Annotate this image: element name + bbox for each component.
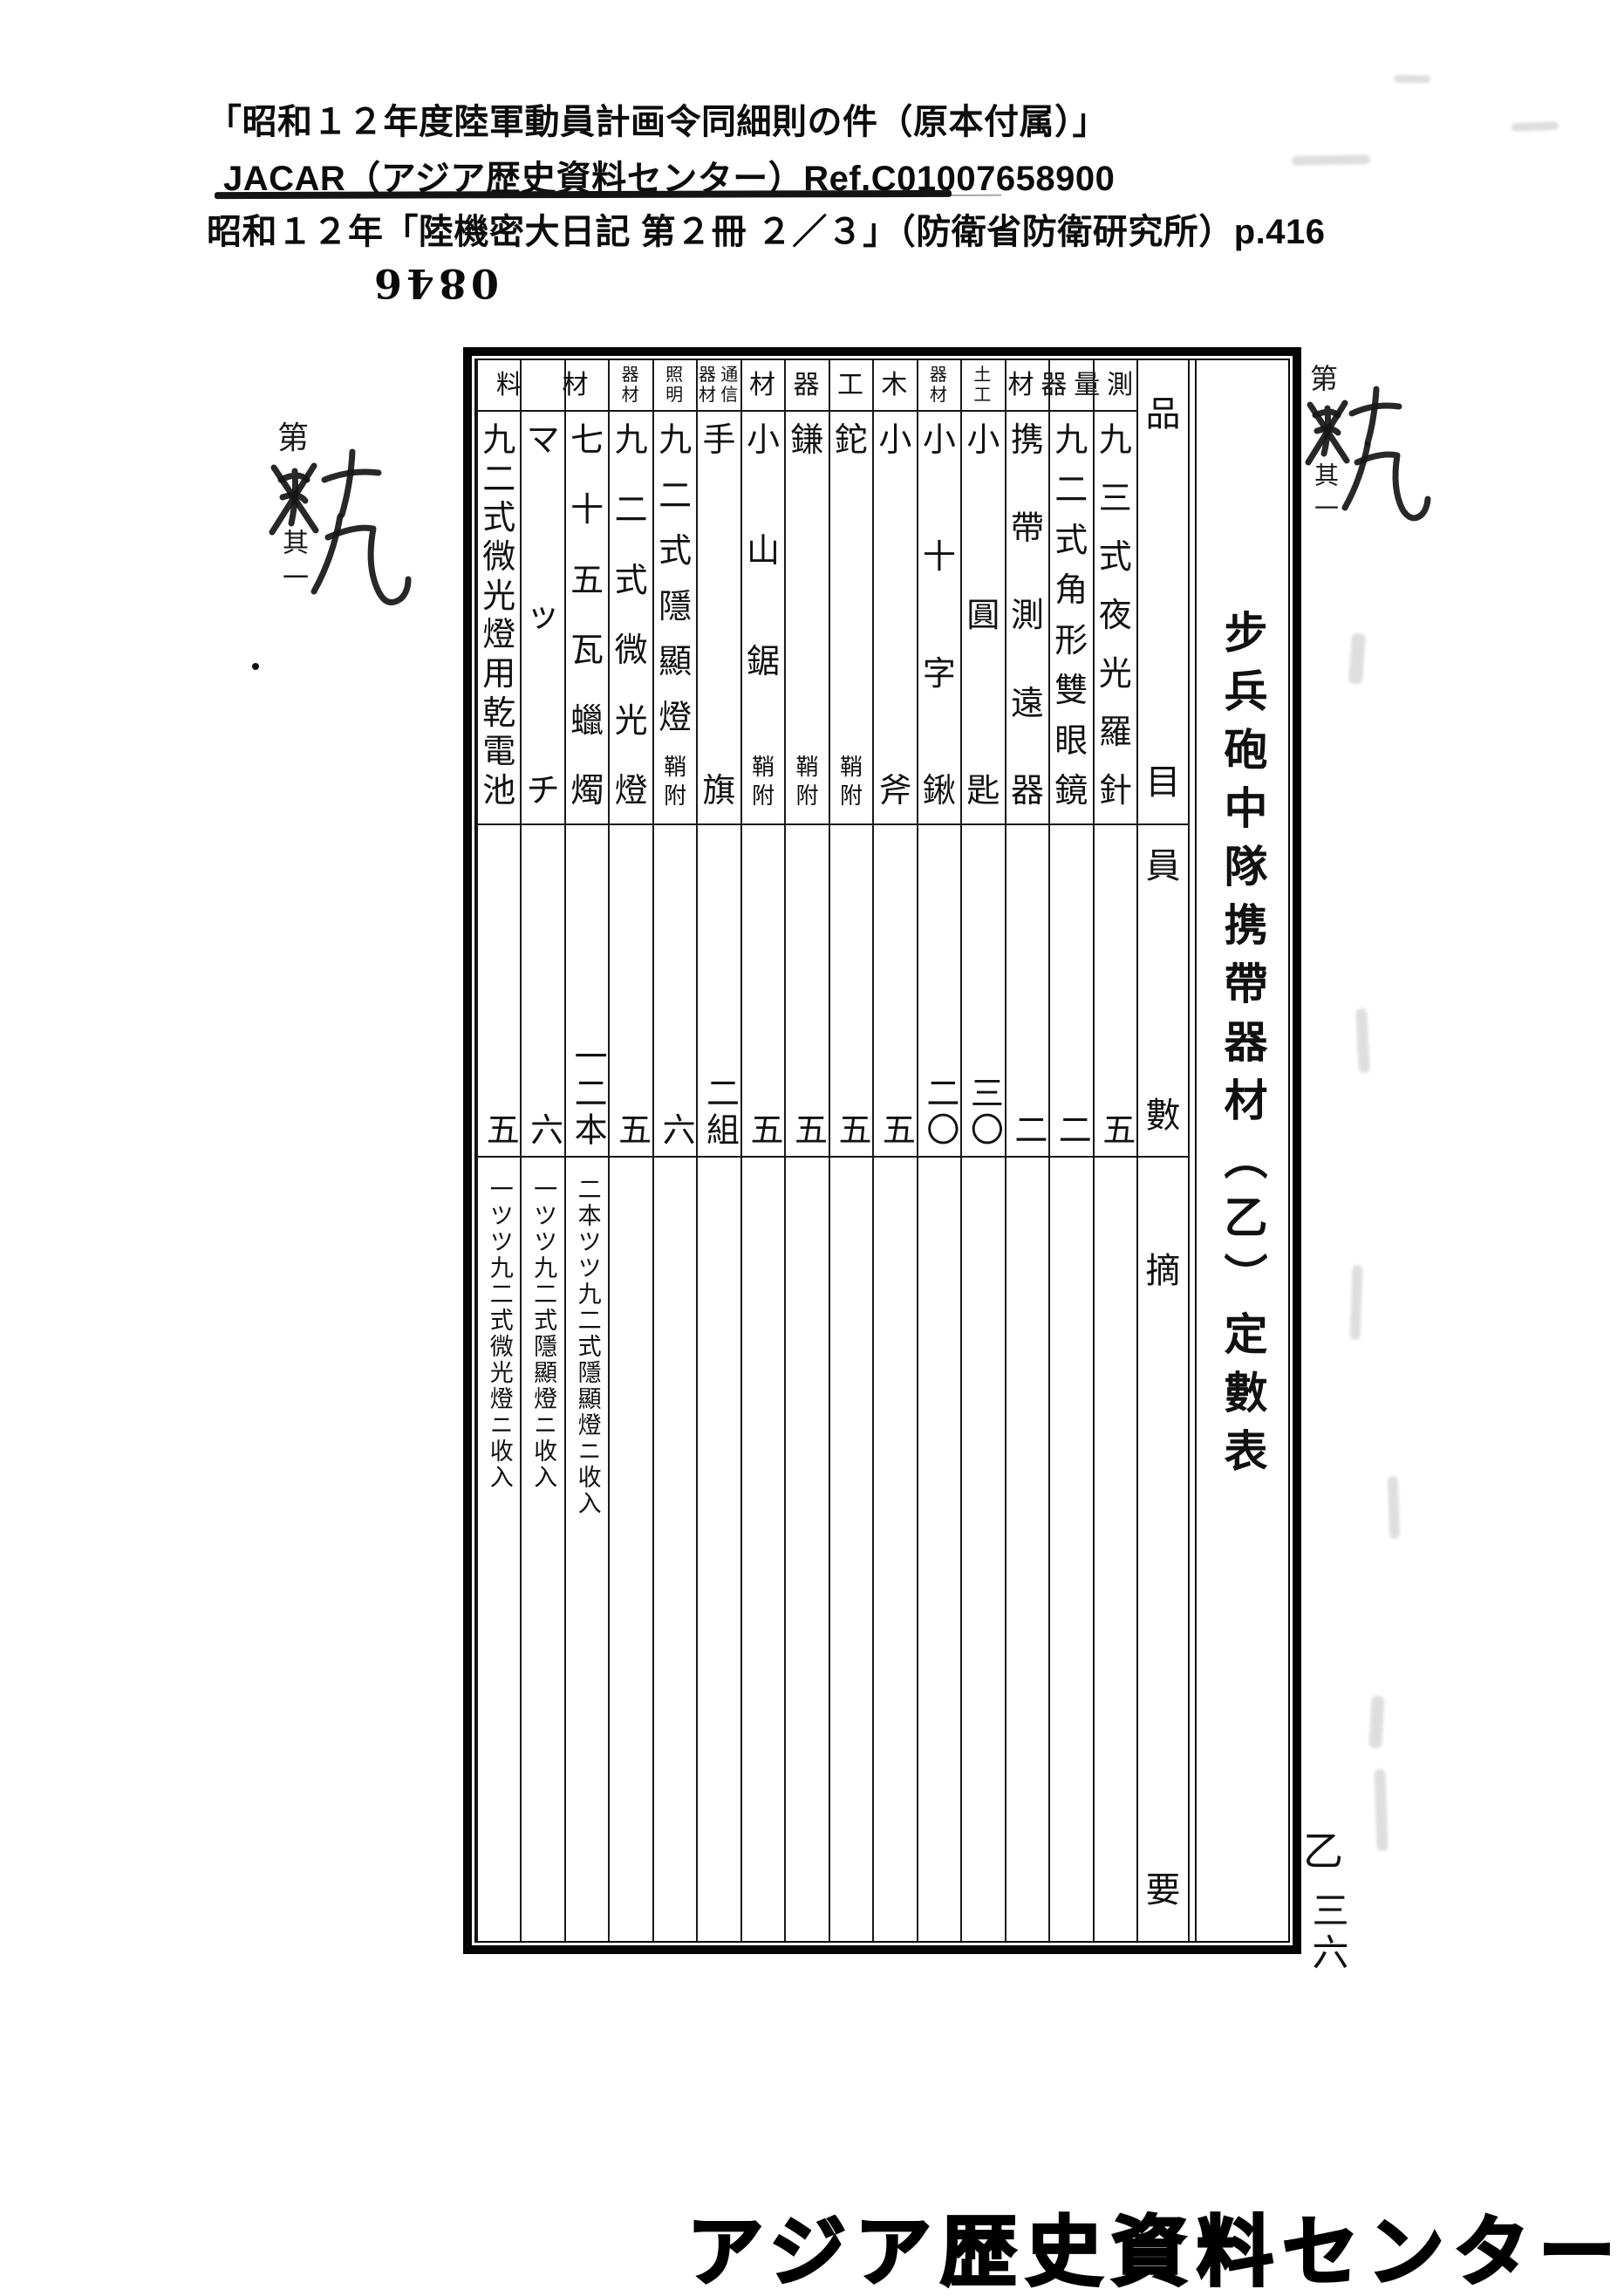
item-quantity: 五 — [1095, 823, 1136, 1156]
item-name: 九二式隱顯燈鞘附 — [654, 360, 696, 823]
item-remark — [830, 1156, 872, 1941]
bleed-mark — [1292, 154, 1370, 166]
item-quantity: 二〇 — [918, 823, 960, 1156]
bleed-mark — [1374, 1769, 1388, 1851]
citation-title: 「昭和１２年度陸軍動員計画令同細則の件（原本付属）」 — [207, 93, 1108, 144]
item-name: 小斧 — [874, 360, 916, 823]
bleed-mark — [1348, 633, 1366, 685]
item-name-suffix: 鞘附 — [840, 756, 863, 808]
item-name: 九二式角形雙眼鏡 — [1050, 360, 1092, 823]
table-inner-border: 測量器材土工器材木工器材通信器材照明器材材料 九三式夜光羅針五九二式角形雙眼鏡二… — [474, 359, 1290, 1943]
item-column: 七十五瓦蠟燭一二本二本ツツ九二式隱顯燈ニ收入 — [564, 360, 608, 1941]
item-quantity: 五 — [478, 823, 520, 1156]
item-name: 小十字鍬 — [918, 360, 960, 823]
item-column: 小山鋸鞘附五 — [740, 360, 784, 1941]
item-quantity: 二 — [1050, 823, 1092, 1156]
item-remark — [1050, 1156, 1092, 1941]
bleed-mark — [1388, 1476, 1401, 1539]
table-title: 步兵砲中隊携帶器材（乙）定數表 — [1221, 610, 1265, 1486]
bleed-mark — [1350, 1265, 1363, 1340]
item-column: 九二式微光燈用乾電池五一ツツ九二式微光燈ニ收入 — [476, 360, 520, 1941]
item-name: 鎌鞘附 — [786, 360, 828, 823]
item-quantity: 二組 — [698, 823, 740, 1156]
item-column: 鎌鞘附五 — [784, 360, 828, 1941]
scanned-document-page: 「昭和１２年度陸軍動員計画令同細則の件（原本付属）」 JACAR（アジア歴史資料… — [0, 0, 1624, 2296]
column-header-char: 品 — [1146, 397, 1181, 432]
column-header-char: 目 — [1146, 765, 1181, 800]
handwritten-mark-icon — [267, 422, 415, 649]
ink-dot — [252, 663, 259, 670]
item-column: 九二式隱顯燈鞘附六 — [652, 360, 696, 1941]
item-remark — [786, 1156, 828, 1941]
item-quantity: 六 — [654, 823, 696, 1156]
item-remark — [918, 1156, 960, 1941]
item-name: 九二式微光燈用乾電池 — [478, 360, 520, 823]
column-header-char: 要 — [1146, 1873, 1181, 1908]
item-name: 九二式微光燈 — [610, 360, 652, 823]
item-remark: 二本ツツ九二式隱顯燈ニ收入 — [566, 1156, 608, 1941]
column-header-char: 摘 — [1146, 1254, 1181, 1288]
bleed-mark — [1511, 121, 1559, 132]
item-quantity: 六 — [522, 823, 563, 1156]
item-name: 小山鋸鞘附 — [742, 360, 784, 823]
item-remark: 一ツツ九二式隱顯燈ニ收入 — [522, 1156, 563, 1941]
item-column: 小圓匙三〇 — [960, 360, 1004, 1941]
citation-source: 昭和１２年「陸機密大日記 第２冊 ２／３」（防衛省防衛研究所）p.416 — [207, 203, 1326, 254]
item-quantity: 五 — [874, 823, 916, 1156]
item-remark — [610, 1156, 652, 1941]
item-remark — [1095, 1156, 1136, 1941]
item-remark — [1006, 1156, 1048, 1941]
column-header-char: 員 — [1146, 849, 1181, 884]
item-quantity: 五 — [786, 823, 828, 1156]
item-quantity: 二 — [1006, 823, 1048, 1156]
item-name: マッチ — [522, 360, 563, 823]
jacar-banner: アジア歴史資料センター — [366, 2209, 1624, 2296]
handwritten-mark-icon — [1305, 365, 1436, 574]
bleed-mark — [1394, 75, 1430, 84]
item-column: 九二式微光燈五 — [608, 360, 652, 1941]
item-remark — [962, 1156, 1004, 1941]
item-name: 七十五瓦蠟燭 — [566, 360, 608, 823]
item-name: 携帶測遠器 — [1006, 360, 1048, 823]
item-name: 小圓匙 — [962, 360, 1004, 823]
item-quantity: 五 — [610, 823, 652, 1156]
item-quantity: 五 — [830, 823, 872, 1156]
title-double-line-inner — [1188, 360, 1190, 1941]
item-name-suffix: 鞘附 — [664, 756, 686, 808]
item-remark: 一ツツ九二式微光燈ニ收入 — [478, 1156, 520, 1941]
item-column: 手旗二組 — [696, 360, 740, 1941]
item-remark — [698, 1156, 740, 1941]
item-column: 小斧五 — [872, 360, 916, 1941]
item-quantity: 三〇 — [962, 823, 1004, 1156]
margin-annotation-left: 第 其一 — [267, 422, 415, 649]
column-header-char: 數 — [1146, 1098, 1181, 1133]
item-name-suffix: 鞘附 — [795, 756, 818, 808]
table-title-column: 步兵砲中隊携帶器材（乙）定數表 — [1197, 360, 1288, 1941]
item-column: 九三式夜光羅針五 — [1093, 360, 1136, 1941]
item-quantity: 五 — [742, 823, 784, 1156]
item-column: 九二式角形雙眼鏡二 — [1048, 360, 1092, 1941]
margin-annotation-right: 第 其一 — [1305, 365, 1436, 574]
bleed-mark — [1368, 1696, 1384, 1749]
item-name-suffix: 鞘附 — [752, 756, 774, 808]
item-remark — [654, 1156, 696, 1941]
page-mark-series: 乙 — [1303, 1820, 1343, 1877]
item-name: 九三式夜光羅針 — [1095, 360, 1136, 823]
stub-header-column: 品目員數摘要 — [1138, 360, 1188, 1941]
page-mark-number: 三六 — [1308, 1891, 1345, 1975]
item-column: 小十字鍬二〇 — [917, 360, 960, 1941]
item-remark — [742, 1156, 784, 1941]
item-columns: 九三式夜光羅針五九二式角形雙眼鏡二携帶測遠器二小圓匙三〇小十字鍬二〇小斧五鉈鞘附… — [476, 360, 1136, 1941]
item-remark — [874, 1156, 916, 1941]
item-column: マッチ六一ツツ九二式隱顯燈ニ收入 — [520, 360, 563, 1941]
item-column: 携帶測遠器二 — [1005, 360, 1048, 1941]
item-column: 鉈鞘附五 — [829, 360, 872, 1941]
item-name: 手旗 — [698, 360, 740, 823]
bleed-mark — [1355, 1008, 1370, 1074]
item-quantity: 一二本 — [566, 823, 608, 1156]
equipment-table: 測量器材土工器材木工器材通信器材照明器材材料 九三式夜光羅針五九二式角形雙眼鏡二… — [463, 347, 1301, 1954]
item-name: 鉈鞘附 — [830, 360, 872, 823]
page-number-stamp: 0846 — [382, 258, 499, 309]
